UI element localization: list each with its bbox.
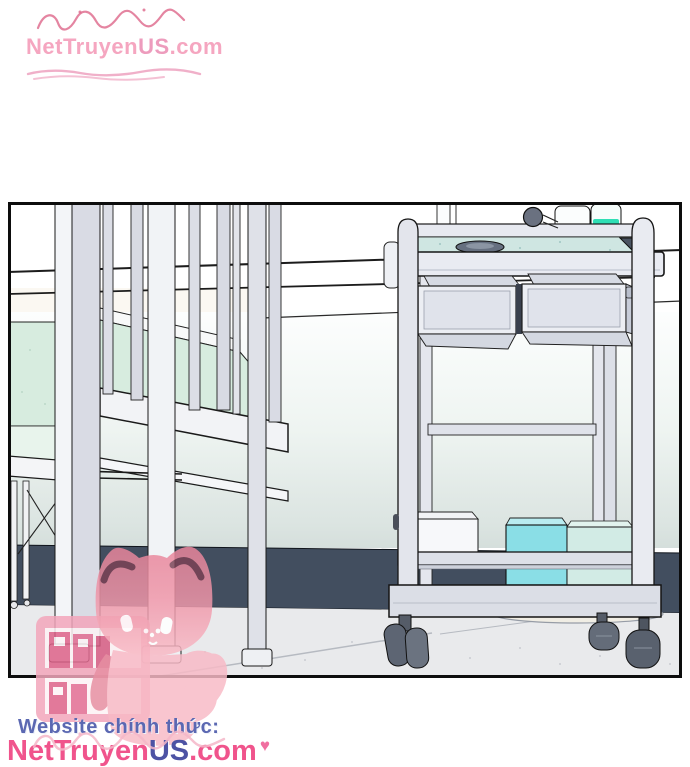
footer-logo-truyen: Truyen bbox=[54, 735, 149, 767]
comic-panel bbox=[0, 0, 690, 767]
footer-logo-com: .com bbox=[189, 735, 257, 767]
watermark-logo-us: US bbox=[138, 34, 170, 59]
manga-reader-page: NetTruyenUS.com Website chính thức: NetT… bbox=[0, 0, 690, 767]
watermark-logo-net: Net bbox=[26, 34, 63, 59]
cart-front-post-right bbox=[632, 218, 654, 612]
footer-logo: NetTruyenUS.com♥ bbox=[7, 735, 270, 767]
cart-tabletop bbox=[386, 252, 664, 276]
cart-drawers bbox=[418, 274, 640, 349]
watermark-logo: NetTruyenUS.com bbox=[26, 34, 223, 60]
heart-icon: ♥ bbox=[260, 736, 270, 755]
cart-front-post-left bbox=[398, 219, 418, 612]
cursive-flourish-icon bbox=[32, 4, 212, 36]
wavy-underline-icon bbox=[24, 66, 224, 82]
watermark-logo-com: .com bbox=[170, 34, 223, 59]
watermark-logo-truyen: Truyen bbox=[63, 34, 138, 59]
footer-logo-net: Net bbox=[7, 735, 54, 767]
cart-bottom-band bbox=[389, 585, 661, 617]
footer-logo-us: US bbox=[149, 735, 189, 767]
site-watermark-top: NetTruyenUS.com bbox=[22, 4, 237, 88]
